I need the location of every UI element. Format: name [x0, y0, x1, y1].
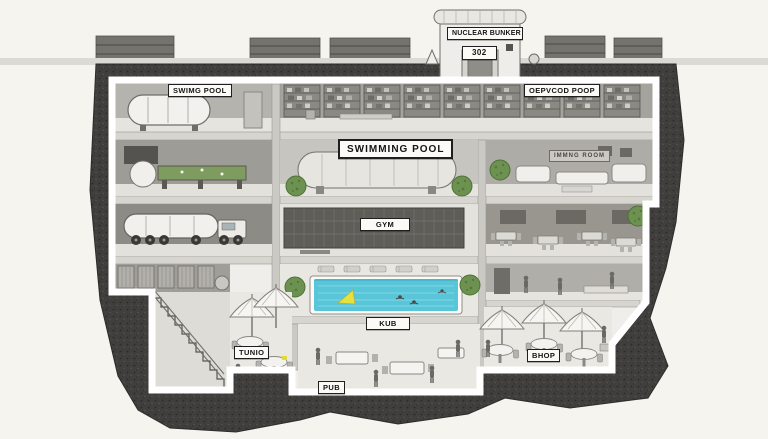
yellow-item [282, 356, 287, 360]
barrel [215, 276, 229, 290]
corridor [486, 264, 646, 300]
table [340, 114, 392, 119]
staircase [152, 290, 230, 390]
barrel [529, 54, 539, 64]
label-pub: PUB [318, 381, 345, 394]
pool-deck [280, 264, 480, 316]
plant [490, 160, 510, 180]
label-nuclear-bunker: NUCLEAR BUNKER [447, 27, 523, 40]
label-tunnel: TUNIO [234, 346, 269, 359]
bench [300, 250, 330, 254]
door [244, 92, 262, 128]
pub-table [390, 362, 424, 374]
dining-hall [486, 204, 648, 256]
label-level1-left: SWIMG POOL [168, 84, 232, 97]
plant [286, 176, 306, 196]
label-swimming-pool-banner: SWIMMING POOL [338, 139, 453, 159]
label-shop: BHOP [527, 349, 560, 362]
rack-cellar [112, 264, 230, 292]
pub-table [336, 352, 368, 364]
wall-art [620, 148, 632, 157]
billiard-table [158, 166, 246, 180]
coffee-table [562, 186, 592, 192]
sofa [556, 172, 608, 184]
door [494, 268, 510, 294]
label-level1-right: OEPVCOD POOP [524, 84, 600, 97]
pub-table [438, 348, 464, 358]
living-room [486, 140, 656, 196]
plant [452, 176, 472, 196]
label-living-room-sign: IMMNG ROOM [549, 150, 610, 162]
sofa [612, 164, 646, 182]
truck-bay [112, 204, 272, 256]
label-pool-area: KUB [366, 317, 410, 330]
label-bunker-number: 302 [462, 46, 497, 60]
label-gym: GYM [360, 218, 410, 231]
bunker-illustration: NUCLEAR BUNKER 302 SWIMG POOL OEPVCOD PO… [0, 0, 768, 439]
sofa [516, 166, 550, 182]
sphere-tank [130, 161, 156, 187]
plant [460, 275, 480, 295]
crate [306, 110, 315, 119]
water-tank [128, 95, 210, 125]
bench [584, 286, 628, 293]
billiard-room [112, 140, 272, 196]
